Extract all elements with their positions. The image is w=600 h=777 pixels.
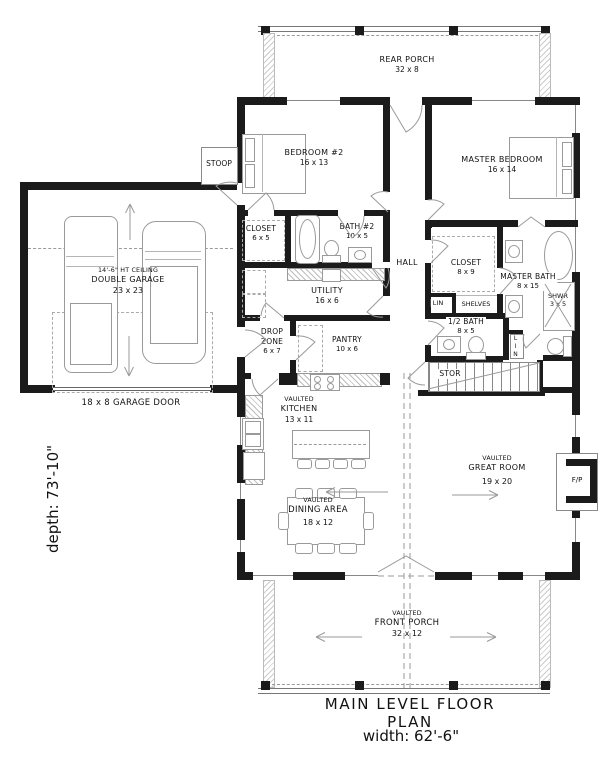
master-bedroom-label: MASTER BEDROOM16 x 14 — [461, 155, 542, 175]
plan-title: MAIN LEVEL FLOOR PLAN — [315, 695, 505, 731]
door-swing — [428, 200, 444, 220]
wall — [452, 293, 456, 315]
wall — [380, 373, 390, 385]
chair — [363, 512, 374, 530]
wall — [425, 293, 452, 297]
rear-door-opening — [390, 97, 422, 105]
half-bath-label: 1/2 BATH8 x 5 — [446, 317, 486, 336]
window — [572, 198, 580, 272]
porch-rail — [263, 580, 275, 688]
front-porch-label: VAULTED FRONT PORCH 32 x 12 — [375, 610, 440, 640]
wall — [503, 313, 509, 360]
porch-post — [449, 26, 458, 35]
shelves-label: SHELVES — [460, 300, 493, 308]
linen-label: LIN — [431, 299, 445, 307]
suv-line — [145, 259, 201, 260]
depth-label: depth: 73'-10" — [44, 419, 62, 579]
window — [287, 97, 340, 105]
master-closet-label: CLOSET8 x 9 — [451, 258, 481, 277]
wall — [543, 355, 578, 361]
wall — [20, 385, 55, 393]
bed-line — [262, 134, 263, 192]
pantry-shelves-dashed — [298, 325, 323, 372]
window — [237, 483, 245, 499]
linen2-label: LIN — [512, 335, 519, 359]
porch-rail — [539, 580, 551, 688]
utility-label: UTILITY16 x 6 — [311, 286, 343, 306]
toilet-tank — [466, 352, 486, 360]
wall — [284, 315, 390, 321]
stool — [315, 459, 330, 469]
door-swing — [252, 379, 278, 395]
garage-door-opening — [237, 327, 245, 357]
arrow-up-icon — [126, 204, 135, 240]
drop-zone-label: DROP ZONE6 x 7 — [253, 327, 291, 356]
front-porch-edge — [258, 688, 550, 694]
wall — [430, 220, 518, 227]
burner — [327, 383, 334, 390]
window — [253, 572, 293, 580]
porch-rail — [263, 33, 275, 99]
wall — [545, 220, 578, 227]
window — [523, 572, 545, 580]
toilet — [547, 338, 564, 355]
porch-post — [355, 26, 364, 35]
suv-line — [145, 251, 201, 252]
window — [572, 518, 580, 542]
opening-peak — [518, 217, 545, 227]
wall — [425, 227, 431, 240]
porch-dashed-line — [267, 684, 548, 685]
wall — [210, 385, 237, 393]
porch-post — [449, 681, 458, 690]
utility-sink — [322, 269, 341, 282]
ridge-line — [404, 373, 410, 688]
wall — [237, 210, 248, 216]
front-door-opening — [378, 572, 435, 580]
washer-dashed — [242, 270, 266, 294]
stool — [297, 459, 312, 469]
sink-bowl — [245, 434, 261, 447]
garage-label: 14'-6" HT CEILING DOUBLE GARAGE 23 x 23 — [91, 267, 164, 296]
closet-label: CLOSET6 x 5 — [246, 224, 276, 243]
hall-label: HALL — [396, 258, 418, 268]
arrow-right-icon — [450, 633, 496, 642]
arrow-left-icon — [316, 633, 362, 642]
fridge — [243, 452, 265, 480]
chair — [295, 543, 313, 554]
chair — [317, 543, 335, 554]
sink-basin — [508, 245, 520, 258]
rear-porch-edge — [258, 26, 550, 32]
island-line — [294, 444, 366, 445]
wall — [383, 216, 390, 262]
wall — [279, 373, 298, 385]
window — [237, 540, 245, 552]
rear-porch-label: REAR PORCH32 x 8 — [379, 55, 434, 75]
dining-label: VAULTED DINING AREA 18 x 12 — [288, 497, 348, 529]
toilet-tank — [563, 336, 572, 357]
door-swing — [523, 334, 540, 348]
pillow — [245, 138, 255, 162]
storage-label: STOR — [437, 369, 462, 379]
door-swing — [408, 362, 425, 385]
door-swing — [367, 296, 383, 317]
window — [572, 415, 580, 437]
pantry-label: PANTRY10 x 6 — [332, 335, 362, 354]
wall — [20, 182, 28, 393]
bathtub-basin — [299, 219, 316, 259]
porch-post — [261, 681, 270, 690]
window — [472, 572, 498, 580]
bed-line — [556, 137, 557, 197]
wall — [237, 373, 251, 379]
shower-label: SHWR3 x 5 — [546, 292, 570, 309]
toilet-tank — [322, 255, 341, 263]
truck-line — [66, 256, 114, 257]
truck-bed — [70, 303, 112, 365]
dryer-dashed — [242, 294, 266, 318]
door-swing — [390, 105, 422, 132]
sink-basin — [508, 300, 520, 313]
window — [572, 105, 580, 133]
garage-door-label: 18 x 8 GARAGE DOOR — [82, 398, 181, 409]
window — [345, 572, 379, 580]
porch-rail — [539, 33, 551, 99]
pillow — [562, 169, 572, 194]
front-door-gable — [378, 556, 434, 572]
door-swing — [248, 193, 274, 210]
sink-bowl — [245, 421, 261, 434]
fireplace-label: F/P — [572, 476, 583, 485]
porch-post — [355, 681, 364, 690]
sink-basin — [354, 250, 366, 260]
window — [472, 97, 535, 105]
wall — [285, 216, 291, 262]
master-bath-label: MASTER BATH8 x 15 — [498, 272, 557, 291]
pillow — [562, 142, 572, 167]
wall — [543, 387, 578, 393]
door-swing — [371, 192, 388, 212]
stool — [351, 459, 366, 469]
chair — [339, 543, 357, 554]
wall — [497, 294, 503, 315]
floor-plan: REAR PORCH32 x 8 14'-6" HT CEILING DOUBL… — [0, 0, 600, 777]
sink-basin — [443, 339, 455, 350]
kitchen-label: VAULTED KITCHEN 13 x 11 — [281, 396, 318, 424]
great-room-label: VAULTED GREAT ROOM 19 x 20 — [468, 455, 525, 487]
shelf-line — [456, 295, 497, 296]
bedroom2-label: BEDROOM #216 x 13 — [284, 148, 343, 168]
stool — [333, 459, 348, 469]
stoop-label: STOOP — [206, 159, 232, 169]
width-label: width: 62'-6" — [363, 727, 459, 745]
arrow-right-icon — [452, 491, 498, 500]
arrow-left-icon — [326, 488, 388, 497]
bath2-label: BATH #210 x 5 — [338, 222, 377, 241]
wall — [383, 105, 390, 192]
wall — [290, 360, 296, 373]
burner — [314, 383, 321, 390]
fireplace-wall — [566, 496, 597, 503]
porch-post — [541, 681, 550, 690]
pillow — [245, 164, 255, 188]
porch-dashed-line — [267, 35, 548, 36]
wall — [497, 227, 503, 268]
burner — [327, 376, 334, 383]
burner — [314, 376, 321, 383]
wall — [425, 105, 432, 200]
